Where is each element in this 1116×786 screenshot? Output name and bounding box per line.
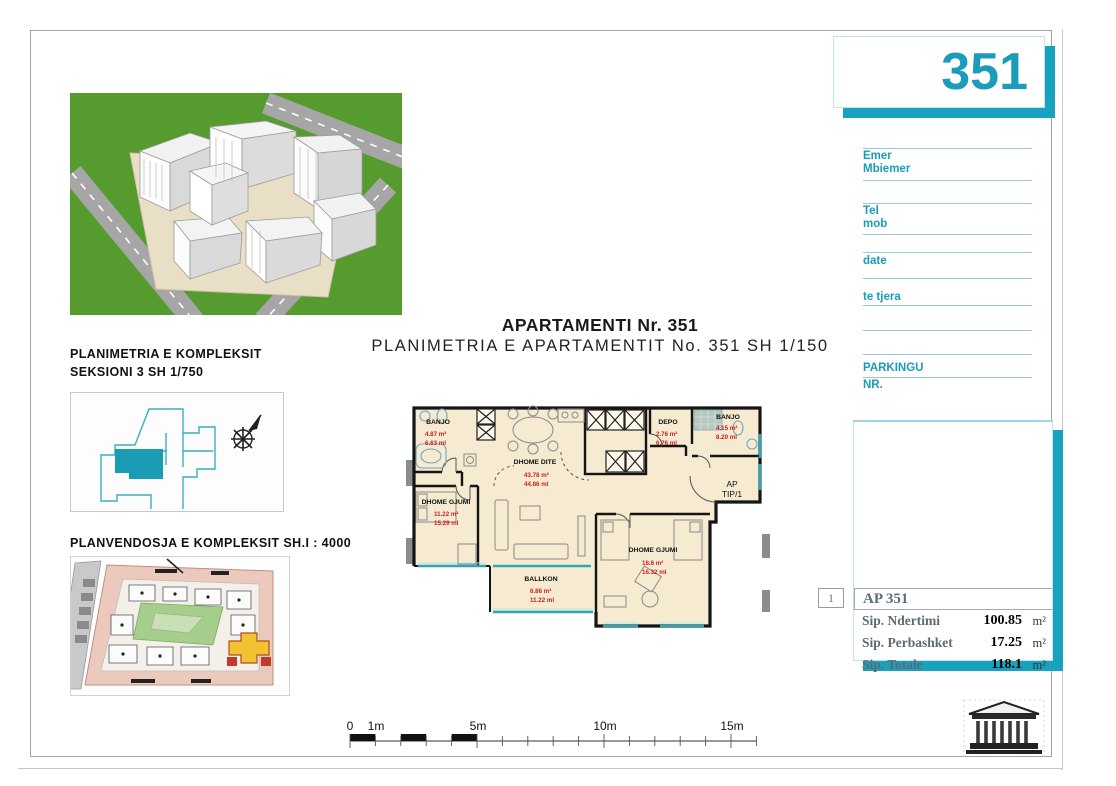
- form-line: [863, 305, 1032, 306]
- room-label-banjo-tr: BANJO: [716, 414, 740, 421]
- summary-header: AP 351: [854, 588, 1052, 610]
- form-label-mbiemer: Mbiemer: [863, 163, 910, 175]
- room-area-banjo-tr: 4.15 m²: [716, 425, 737, 432]
- form-line: [863, 278, 1032, 279]
- scale-label-1m: 1m: [368, 719, 385, 733]
- table-row: Sip. Perbashket 17.25 m²: [854, 632, 1052, 654]
- room-perim-gjumi-br: 16.32 ml: [642, 569, 667, 576]
- form-label-mob: mob: [863, 218, 887, 230]
- summary-row-label: Sip. Totale: [862, 657, 991, 673]
- scale-label-15m: 15m: [720, 719, 743, 733]
- shaft-left: [477, 409, 495, 440]
- temple-logo-icon: [963, 698, 1045, 758]
- form-label-emer: Emer: [863, 150, 892, 162]
- table-row: Sip. Totale 118.1 m²: [854, 654, 1052, 676]
- summary-row-label: Sip. Ndertimi: [862, 613, 984, 629]
- complex-3d-render-image: [70, 93, 402, 315]
- table-index-box: 1: [818, 588, 844, 608]
- form-line: [863, 377, 1032, 378]
- room-area-gjumi-l: 11.22 m²: [434, 511, 458, 518]
- apartment-title: APARTAMENTI Nr. 351: [350, 315, 850, 336]
- room-label-banjo-tl: BANJO: [426, 419, 450, 426]
- apartment-subtitle: PLANIMETRIA E APARTAMENTIT No. 351 SH 1/…: [330, 337, 870, 356]
- apartment-number-card: 351: [833, 36, 1045, 108]
- room-area-ballkon: 6.86 m²: [530, 588, 551, 595]
- room-area-gjumi-br: 18.6 m²: [642, 560, 663, 567]
- form-line: [863, 180, 1032, 181]
- form-line: [863, 354, 1032, 355]
- scale-label-0: 0: [347, 719, 354, 733]
- form-line: [863, 203, 1032, 204]
- komplex-plan-title-line2: SEKSIONI 3 SH 1/750: [70, 365, 203, 379]
- room-perim-depo: 6.76 ml: [656, 440, 677, 447]
- room-perim-banjo-tr: 8.20 ml: [716, 434, 737, 441]
- highlighted-section: [115, 449, 163, 479]
- form-label-parkingu: PARKINGU: [863, 362, 923, 374]
- sheet-frame-outer-right: [1062, 30, 1063, 770]
- compass-icon: [231, 415, 261, 451]
- summary-row-value: 17.25: [991, 635, 1023, 651]
- summary-row-value: 118.1: [991, 657, 1022, 673]
- summary-row-unit: m²: [1022, 658, 1046, 673]
- form-label-nr: NR.: [863, 379, 883, 391]
- komplex-plan-title-line1: PLANIMETRIA E KOMPLEKSIT: [70, 347, 262, 361]
- room-perim-banjo-tl: 6.63 ml: [425, 440, 446, 447]
- scale-label-5m: 5m: [470, 719, 487, 733]
- area-summary-table: AP 351 Sip. Ndertimi 100.85 m² Sip. Perb…: [854, 588, 1052, 676]
- area-summary-card: AP 351 Sip. Ndertimi 100.85 m² Sip. Perb…: [853, 420, 1053, 661]
- section-key-plan-image: [71, 393, 281, 509]
- ap-type-label-line2: TIP/1: [722, 489, 743, 499]
- room-label-gjumi-br: DHOME GJUMI: [629, 547, 678, 554]
- scale-label-10m: 10m: [593, 719, 616, 733]
- architect-logo: [963, 698, 1045, 758]
- ap-type-label-line1: AP: [726, 479, 738, 489]
- form-line: [863, 234, 1032, 235]
- scale-bar-image: 0 1m 5m 10m 15m: [340, 712, 770, 754]
- room-area-depo: 2.76 m²: [656, 431, 677, 438]
- form-label-te-tjera: te tjera: [863, 291, 901, 303]
- room-perim-gjumi-l: 15.29 ml: [434, 520, 459, 527]
- site-plan-image: [71, 557, 287, 693]
- form-label-date: date: [863, 255, 887, 267]
- room-label-gjumi-l: DHOME GJUMI: [422, 499, 471, 506]
- room-perim-ballkon: 11.22 ml: [530, 597, 554, 604]
- table-row: Sip. Ndertimi 100.85 m²: [854, 610, 1052, 632]
- form-label-tel: Tel: [863, 205, 879, 217]
- floor-plan-image: BANJO DHOME GJUMI DHOME DITE DEPO BANJO …: [398, 394, 774, 634]
- room-label-dite: DHOME DITE: [514, 459, 557, 466]
- drawing-sheet: PLANIMETRIA E KOMPLEKSIT SEKSIONI 3 SH 1…: [0, 0, 1116, 786]
- room-perim-dite: 44.86 ml: [524, 481, 549, 488]
- summary-row-unit: m²: [1022, 636, 1046, 651]
- room-label-ballkon: BALLKON: [524, 576, 557, 583]
- summary-blank-panel: [854, 422, 1052, 588]
- apartment-floor-plan: BANJO DHOME GJUMI DHOME DITE DEPO BANJO …: [398, 394, 774, 634]
- room-label-depo: DEPO: [658, 419, 677, 426]
- apartment-number: 351: [834, 41, 1028, 103]
- site-plan-title: PLANVENDOSJA E KOMPLEKSIT SH.I : 4000: [70, 536, 351, 550]
- site-plan: [70, 556, 290, 696]
- form-line: [863, 148, 1032, 149]
- form-line: [863, 330, 1032, 331]
- scale-bar: 0 1m 5m 10m 15m: [340, 712, 770, 754]
- summary-row-label: Sip. Perbashket: [862, 635, 991, 651]
- sheet-frame-outer-bottom: [18, 768, 1063, 769]
- form-line: [863, 252, 1032, 253]
- section-key-plan: [70, 392, 284, 512]
- room-area-banjo-tl: 4.87 m²: [425, 431, 446, 438]
- summary-row-value: 100.85: [984, 613, 1023, 629]
- room-area-dite: 43.78 m²: [524, 472, 549, 479]
- complex-3d-render: [70, 93, 402, 315]
- summary-row-unit: m²: [1022, 614, 1046, 629]
